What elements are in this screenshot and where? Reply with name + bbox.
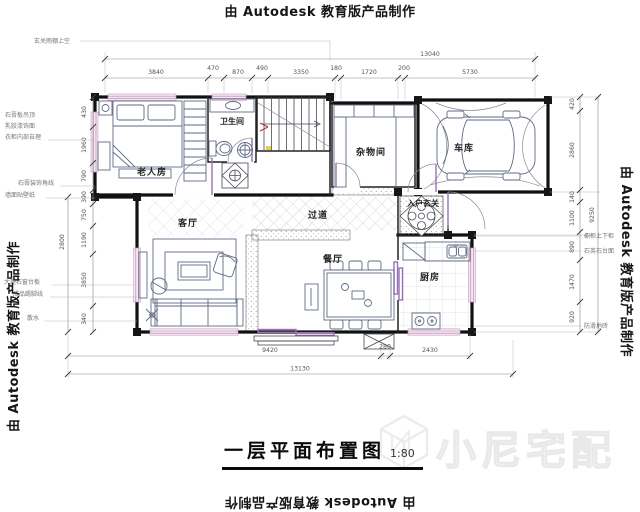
- drawing-title: 一层平面布置图1:80: [222, 436, 423, 470]
- label-bathroom: 卫生间: [220, 116, 244, 126]
- door-kitchen-slider: [394, 260, 403, 300]
- dim-left-seg: 340: [81, 313, 88, 325]
- armchair-icon: [213, 252, 238, 277]
- dim-right-seg: 140: [569, 191, 576, 203]
- dim-left-overall: 2800: [59, 234, 66, 250]
- dim-right-seg: 920: [569, 311, 576, 323]
- dim-right-seg: 420: [569, 98, 576, 110]
- dim-left-seg: 1190: [81, 232, 88, 248]
- dining-table-icon: [324, 270, 394, 320]
- watermark-autodesk-right: 由 Autodesk 教育版产品制作: [618, 166, 637, 357]
- watermark-autodesk-bottom: 由 Autodesk 教育版产品制作: [224, 494, 415, 512]
- note-right: 石英石台面: [584, 247, 614, 255]
- dim-left-seg: 430: [81, 106, 88, 118]
- drawing-title-text: 一层平面布置图: [224, 440, 385, 462]
- dim-left-seg: 790: [81, 170, 88, 182]
- watermark-autodesk-left: 由 Autodesk 教育版产品制作: [3, 241, 22, 432]
- door-garage-foyer: [407, 164, 438, 195]
- dim-top-seg: 3840: [148, 69, 164, 76]
- note-right: 橱柜上下柜: [584, 232, 614, 240]
- wardrobe-icon: [184, 101, 206, 181]
- living-carpet-hatch: [148, 199, 244, 237]
- dim-bottom-total: 13130: [290, 366, 310, 373]
- label-storage: 杂物间: [356, 146, 386, 158]
- cad-sheet: 小尼宅配: [0, 0, 640, 512]
- bathroom-fixtures: [209, 99, 254, 158]
- car-icon: [437, 111, 535, 180]
- watermark-autodesk-top: 由 Autodesk 教育版产品制作: [224, 1, 415, 20]
- label-hallway: 过道: [308, 209, 328, 221]
- drawing-scale: 1:80: [390, 447, 415, 460]
- window-bedroom-left: [91, 112, 98, 172]
- dim-top-seg: 470: [207, 65, 219, 72]
- dim-right: 420 2860 140 1100 890 1470 920 9250: [474, 94, 601, 335]
- dim-bottom-seg: 9420: [262, 347, 278, 354]
- note-left: 石膏板吊顶: [5, 111, 35, 119]
- dining-furniture: [305, 261, 394, 329]
- dim-right-seg: 1100: [569, 210, 576, 226]
- garage-floor-curves: [422, 103, 545, 190]
- note-left: 散水: [27, 314, 39, 322]
- door-living-slider: [258, 330, 334, 336]
- dim-top-seg: 5730: [462, 69, 478, 76]
- dim-top-total: 13040: [420, 51, 440, 58]
- dim-top-seg: 3350: [293, 69, 309, 76]
- note-left: 石膏装饰角线: [18, 179, 54, 187]
- dim-top-seg: 1720: [361, 69, 377, 76]
- window-bedroom-top: [108, 94, 176, 101]
- dim-top-seg: 180: [330, 65, 342, 72]
- dim-bottom-seg: 280: [379, 344, 391, 351]
- window-kitchen-bottom: [408, 329, 460, 335]
- note-right: 防滑地砖: [584, 322, 608, 330]
- window-kitchen-right: [469, 248, 476, 302]
- landing-medallion-icon: [222, 163, 248, 188]
- sideboard-icon: [305, 284, 318, 310]
- stairs: [257, 97, 330, 151]
- dim-left: 430 1960 790 390 750 1190 3850 340 2800: [59, 94, 96, 335]
- label-dining: 餐厅: [322, 253, 343, 265]
- storage-shelves: [334, 105, 414, 187]
- door-entry: [448, 192, 485, 229]
- kitchen-floor-tile: [400, 240, 470, 330]
- dim-left-seg: 390: [81, 191, 88, 203]
- dim-left-seg: 1960: [81, 137, 88, 153]
- bed-icon: [98, 101, 182, 178]
- window-bathroom-top: [212, 94, 246, 101]
- dim-top-seg: 200: [398, 65, 410, 72]
- vanity-icon: [210, 99, 254, 112]
- label-foyer: 入户玄关: [406, 198, 439, 208]
- note-top: 玄关雨棚上空: [34, 37, 70, 45]
- note-left: 乳胶漆饰面: [5, 122, 35, 130]
- stair-highlight: [266, 146, 271, 150]
- note-left: 墙面贴壁纸: [5, 191, 35, 199]
- label-kitchen: 厨房: [420, 271, 440, 283]
- dim-left-seg: 3850: [81, 272, 88, 288]
- dim-bottom-seg: 2430: [422, 347, 438, 354]
- dim-right-seg: 1470: [569, 274, 576, 290]
- sink-icon: [226, 102, 241, 110]
- window-living-bottom: [150, 329, 238, 335]
- label-living: 客厅: [177, 217, 198, 229]
- toilet-tank-icon: [209, 141, 216, 156]
- dim-top-seg: 490: [256, 65, 268, 72]
- label-elder-bedroom: 老人房: [136, 166, 167, 178]
- dim-right-overall: 9250: [589, 207, 596, 223]
- dim-top: 13040 3840 470 870 490 3350 180 1720 200…: [102, 51, 538, 99]
- dim-right-seg: 2860: [569, 142, 576, 158]
- dim-top-seg: 870: [232, 69, 244, 76]
- door-bedroom: [173, 158, 214, 199]
- door-storage: [334, 163, 360, 193]
- dim-left-seg: 750: [81, 209, 88, 221]
- fan-icon: [146, 309, 158, 321]
- label-garage: 车库: [454, 142, 474, 154]
- living-furniture: [139, 239, 243, 326]
- note-left: 衣柜内部自理: [5, 133, 41, 141]
